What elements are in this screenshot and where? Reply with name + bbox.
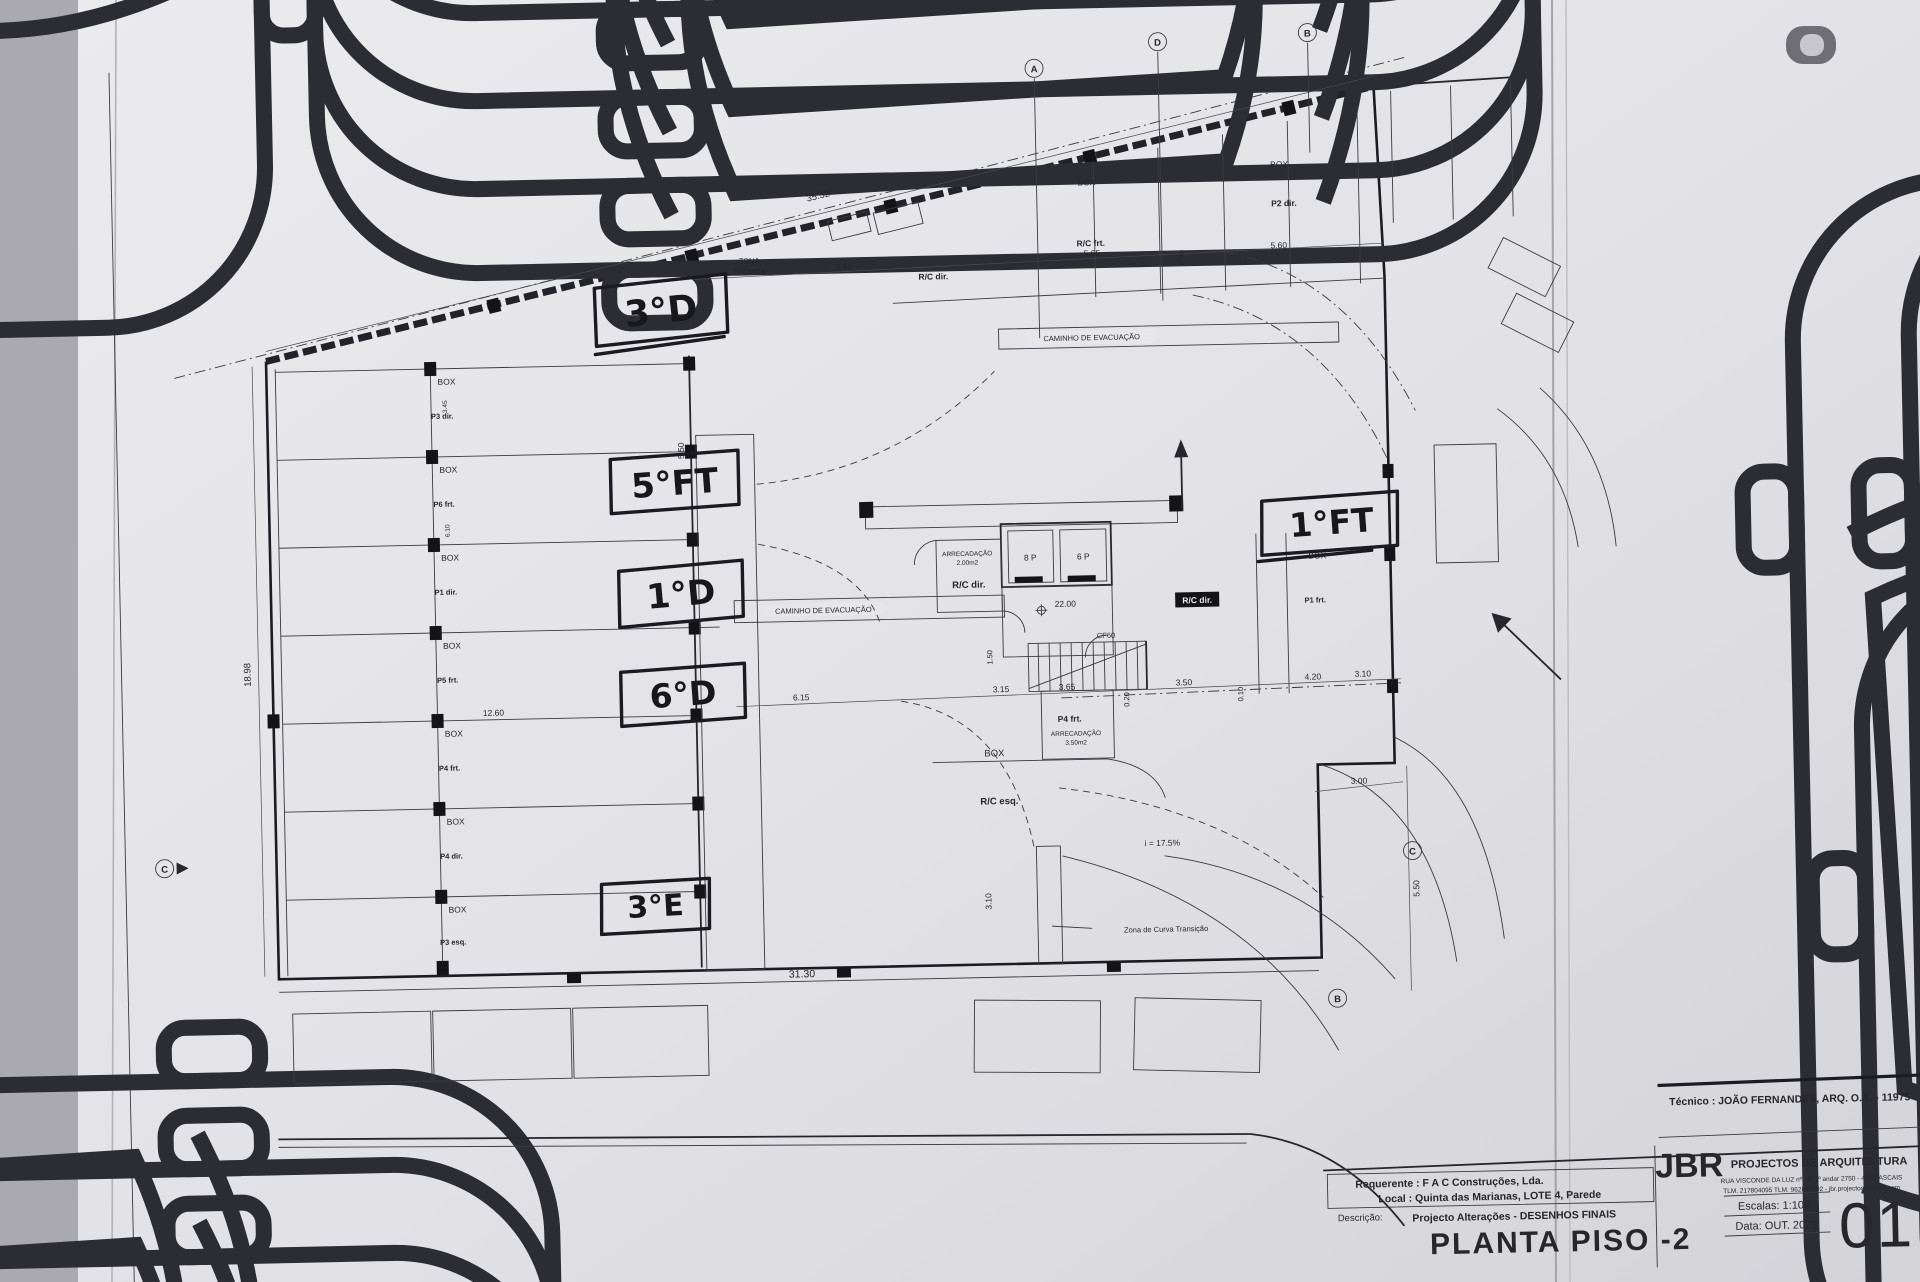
dim: 3.45 (442, 400, 449, 413)
section-marker-c-left: C (161, 865, 168, 876)
box-label: BOX (1077, 177, 1095, 187)
handwritten-unit: 6°D (648, 672, 718, 716)
description-label: Descrição: (1338, 1212, 1383, 1224)
scale-line: Escalas: 1:100 (1738, 1199, 1810, 1213)
transition-curve-label: Zona de Curva Transição (1124, 924, 1208, 935)
stall-label: P1 dir. (435, 588, 458, 597)
box-label: BOX (441, 552, 459, 562)
binder-clip-hole (1800, 34, 1824, 56)
dim: 3.10 (1354, 668, 1371, 678)
stall-label: P4 frt. (439, 763, 460, 772)
unit-label: R/C esq. (980, 796, 1018, 808)
dim: 9.60 (836, 261, 853, 271)
slope-label: i = 17.5% (1144, 837, 1180, 848)
dim: 1.50 (985, 650, 994, 665)
stall-label: P4 dir. (440, 851, 463, 860)
level-mark: 22.00 (1055, 599, 1077, 609)
dim: 0.10 (1177, 250, 1186, 265)
dim: 3.65 (1059, 682, 1076, 692)
dim-left: 18.98 (242, 663, 253, 687)
handwritten-unit: 3°D (623, 287, 700, 336)
dim: 12.60 (483, 708, 505, 718)
dim: 5.50 (676, 442, 686, 459)
box-label: BOX (1270, 159, 1288, 169)
firm-initials: JBR (1655, 1146, 1724, 1185)
date-line: Data: OUT. 2023 (1735, 1219, 1817, 1233)
floor-plan-svg: BOX P3 dir. BOX P6 frt. BOX P1 dir. BOX … (0, 0, 1920, 1282)
stall-label: P3 esq. (440, 937, 466, 947)
unit-label: R/C dir. (952, 579, 985, 591)
dim: 3.50 (1176, 677, 1193, 687)
storage-area: 2.00m2 (956, 560, 978, 567)
dim: 4.20 (1304, 671, 1321, 681)
box-label: BOX (448, 904, 466, 914)
elevator-label: 6 P (1077, 551, 1090, 561)
sheet-title: PLANTA PISO -2 (1430, 1223, 1692, 1261)
box-label: BOX (445, 728, 463, 738)
sheet-number: 01 (1838, 1188, 1915, 1262)
storage-area: 3.50m2 (1065, 739, 1087, 746)
scanned-drawing-photo: BOX P3 dir. BOX P6 frt. BOX P1 dir. BOX … (0, 0, 1920, 1282)
section-marker-a: A (1031, 64, 1038, 75)
handwritten-unit: 3°E (626, 888, 684, 926)
unit-label: P4 frt. (1058, 713, 1082, 724)
elevator-label: 8 P (1024, 552, 1037, 562)
dim: 0.20 (1122, 692, 1131, 707)
section-marker-b: B (1304, 29, 1311, 40)
unit-label: R/C dir. (918, 271, 948, 282)
dim: 6.15 (793, 692, 810, 702)
zona-tecnica-label-2: TÉCNICA (733, 267, 766, 277)
dim: 3.00 (1351, 775, 1368, 785)
section-marker-d: D (1154, 38, 1161, 49)
section-marker-c-right: C (1409, 846, 1416, 857)
unit-label: P1 frt. (1305, 595, 1326, 604)
dim: 5.65 (1084, 248, 1101, 258)
dim: 0.10 (1236, 687, 1245, 702)
dim: 5.50 (1411, 880, 1421, 897)
unit-label: P2 dir. (1271, 198, 1297, 209)
box-label: BOX (437, 377, 455, 387)
box-label: BOX (443, 640, 461, 650)
box-label: BOX (984, 748, 1005, 759)
zona-tecnica-label: ZONA (738, 256, 759, 265)
box-label: BOX (447, 816, 465, 826)
handwritten-unit: 1°D (645, 572, 717, 618)
unit-label-inverse: R/C dir. (1182, 595, 1212, 606)
handwritten-unit: 5°FT (630, 461, 721, 507)
fire-door-label: CF60 (1097, 631, 1116, 640)
stall-label: P5 frt. (437, 676, 458, 685)
dim: 3.15 (993, 684, 1010, 694)
paper-sheet (74, 0, 1920, 1282)
unit-label: R/C frt. (1076, 238, 1105, 249)
dim: 5.60 (1270, 240, 1287, 250)
section-marker-b-bottom: B (1334, 994, 1341, 1005)
stall-label: P6 frt. (433, 500, 454, 509)
dim-bottom: 31.30 (789, 968, 816, 981)
dim: 6.10 (444, 524, 451, 537)
box-label: BOX (439, 464, 457, 474)
handwritten-unit: 1°FT (1288, 500, 1376, 545)
dim: 3.10 (983, 893, 993, 910)
